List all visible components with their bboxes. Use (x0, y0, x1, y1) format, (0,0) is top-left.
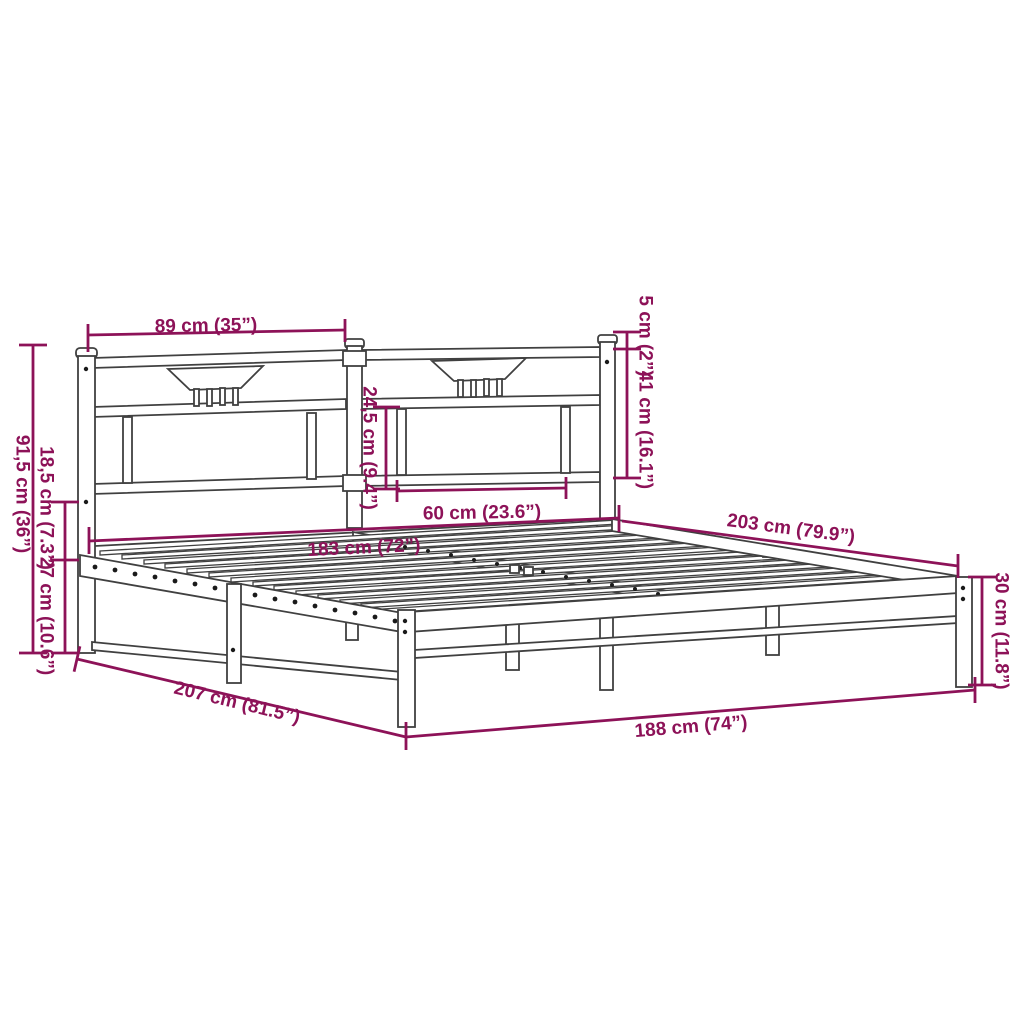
dim-label-207cm: 207 cm (81.5”) (172, 678, 302, 729)
dim-label-30cm: 30 cm (11.8”) (991, 572, 1012, 689)
dim-label-89cm: 89 cm (35”) (155, 315, 258, 338)
panel-stile (123, 417, 132, 483)
headboard-right-post (597, 335, 620, 530)
dim-label-915cm: 91,5 cm (36”) (12, 435, 33, 553)
panel-stile (397, 409, 406, 475)
corner-leg-front-left (398, 610, 415, 727)
headboard-top-rail-right (360, 347, 600, 360)
center-leg (600, 616, 613, 690)
dim-label-41cm: 41 cm (16.1”) (635, 371, 656, 489)
side-leg (227, 584, 241, 683)
dim-label-245cm: 24,5 cm (9.4”) (359, 386, 380, 510)
headboard-top-rail-left (92, 350, 346, 368)
panel-stile (307, 413, 316, 479)
bed-frame-diagram-svg: 89 cm (35”) 5 cm (2”) 41 cm (16.1”) 24,5… (0, 0, 1024, 1024)
dim-label-5cm: 5 cm (2”) (635, 295, 656, 376)
dimension-diagram: 89 cm (35”) 5 cm (2”) 41 cm (16.1”) 24,5… (0, 0, 1024, 1024)
dim-label-27cm: 27 cm (10.6”) (36, 557, 57, 675)
dim-label-60cm: 60 cm (23.6”) (423, 501, 542, 524)
panel-stile (561, 407, 570, 473)
headboard-fan-right (432, 358, 526, 397)
dim-label-185cm: 18,5 cm (7.3”) (36, 446, 57, 570)
headboard-fan-left (168, 366, 263, 406)
corner-leg-front-right (956, 577, 972, 687)
